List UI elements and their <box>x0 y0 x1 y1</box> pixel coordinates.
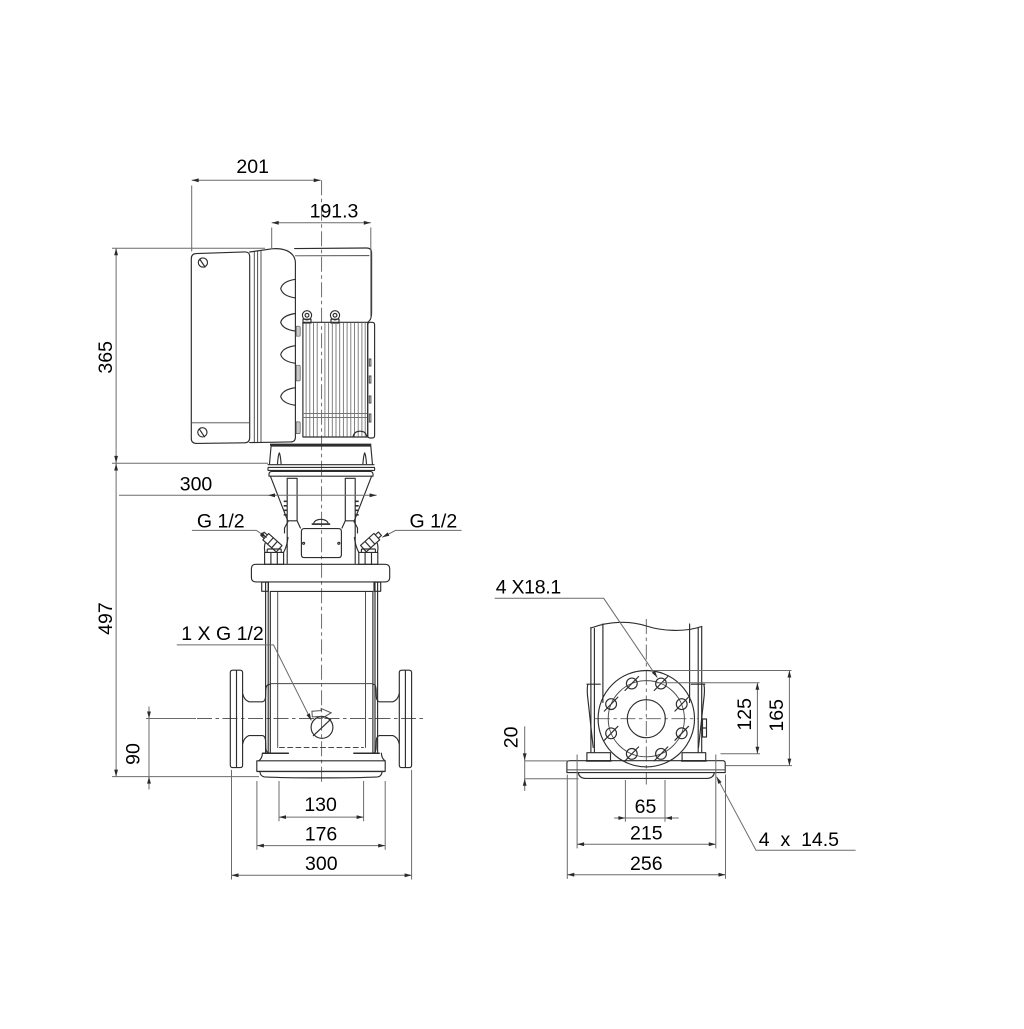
svg-text:4 X18.1: 4 X18.1 <box>496 577 561 599</box>
svg-text:G 1/2: G 1/2 <box>197 510 245 532</box>
svg-text:165: 165 <box>766 699 788 732</box>
svg-text:300: 300 <box>180 473 213 495</box>
svg-text:130: 130 <box>304 794 337 816</box>
svg-text:191.3: 191.3 <box>310 200 359 222</box>
svg-text:1 X G 1/2: 1 X G 1/2 <box>181 623 263 645</box>
svg-text:20: 20 <box>501 726 523 748</box>
svg-text:201: 201 <box>236 156 269 178</box>
svg-text:65: 65 <box>635 796 657 818</box>
svg-text:256: 256 <box>630 853 663 875</box>
svg-text:4 x 14.5: 4 x 14.5 <box>759 829 839 851</box>
svg-text:497: 497 <box>95 602 117 635</box>
svg-text:G 1/2: G 1/2 <box>410 510 458 532</box>
svg-text:215: 215 <box>630 822 663 844</box>
svg-text:125: 125 <box>734 698 756 731</box>
svg-text:300: 300 <box>305 853 338 875</box>
svg-text:90: 90 <box>123 743 145 765</box>
svg-text:365: 365 <box>95 341 117 374</box>
svg-text:176: 176 <box>305 823 338 845</box>
